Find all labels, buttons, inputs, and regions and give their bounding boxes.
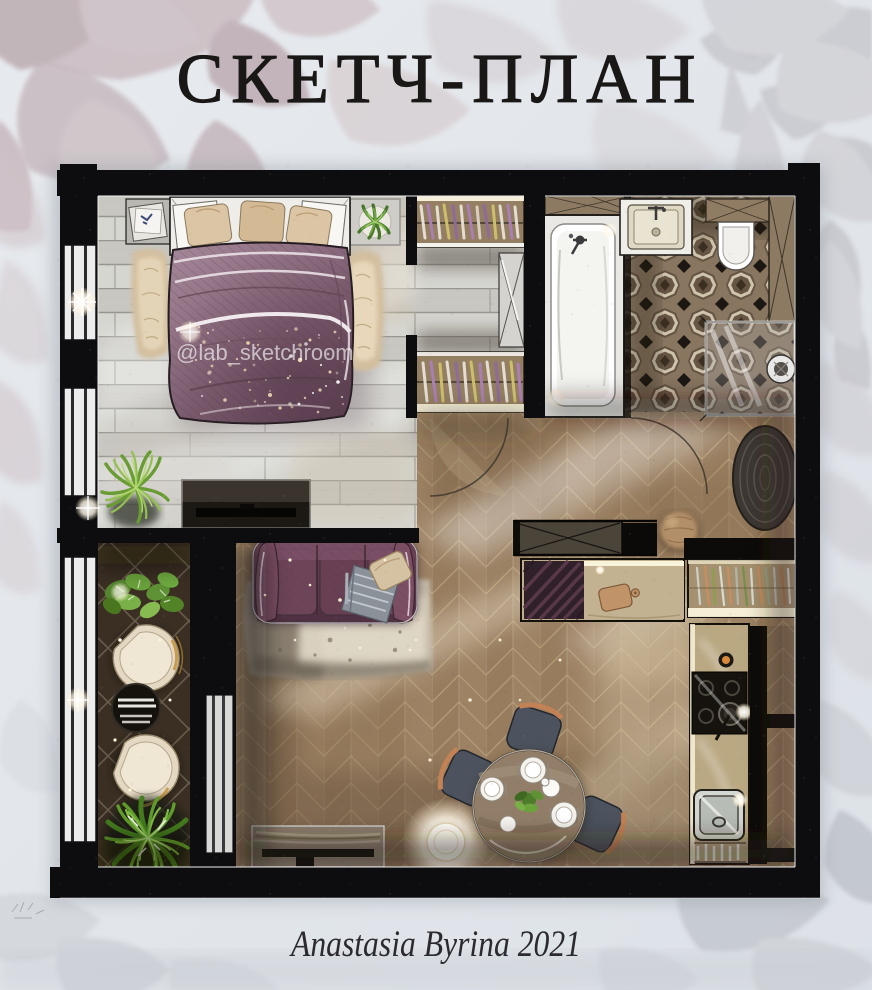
svg-text:Anastasia Byrina 2021: Anastasia Byrina 2021	[288, 924, 581, 965]
svg-text:СКЕТЧ-ПЛАН: СКЕТЧ-ПЛАН	[177, 41, 704, 118]
svg-text:@lab_sketchroom: @lab_sketchroom	[176, 340, 354, 365]
